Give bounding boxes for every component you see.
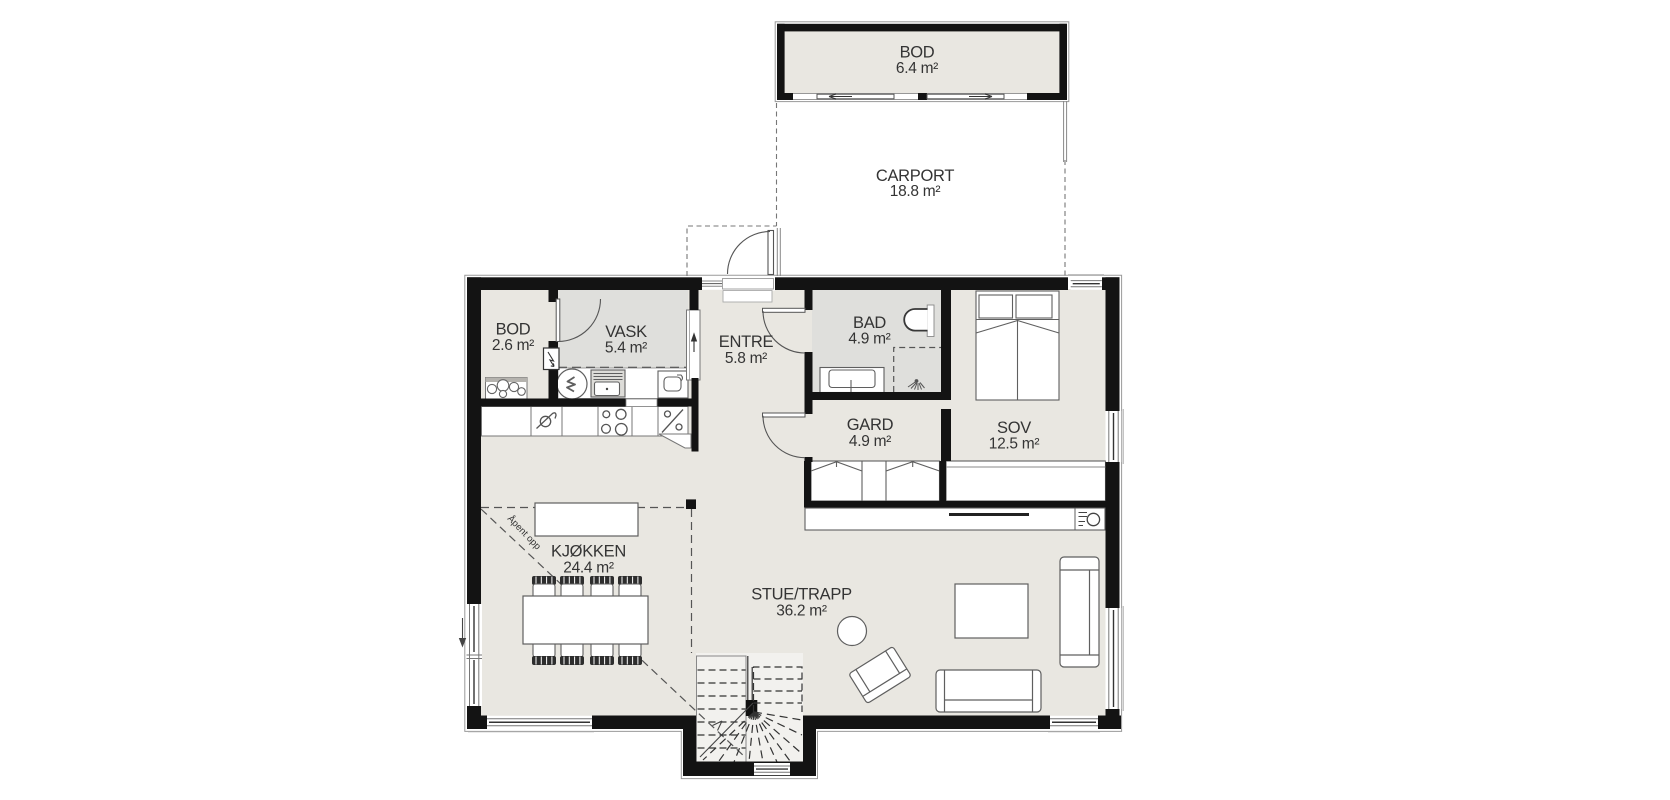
svg-text:12.5 m²: 12.5 m²	[989, 436, 1040, 453]
svg-text:BAD: BAD	[853, 314, 886, 332]
svg-text:KJØKKEN: KJØKKEN	[551, 543, 626, 561]
svg-text:2.6 m²: 2.6 m²	[492, 337, 534, 354]
svg-text:SOV: SOV	[997, 419, 1031, 437]
svg-text:BOD: BOD	[496, 321, 531, 339]
svg-text:5.8 m²: 5.8 m²	[725, 350, 767, 367]
svg-text:4.9 m²: 4.9 m²	[848, 331, 890, 348]
svg-text:36.2 m²: 36.2 m²	[776, 603, 827, 620]
svg-text:VASK: VASK	[605, 323, 647, 341]
svg-text:4.9 m²: 4.9 m²	[849, 433, 891, 450]
svg-text:GARD: GARD	[847, 416, 894, 434]
svg-text:5.4 m²: 5.4 m²	[605, 340, 647, 357]
svg-text:BOD: BOD	[900, 44, 935, 62]
svg-text:6.4 m²: 6.4 m²	[896, 60, 938, 77]
svg-text:ENTRE: ENTRE	[719, 333, 774, 351]
svg-text:STUE/TRAPP: STUE/TRAPP	[751, 586, 852, 604]
svg-text:18.8 m²: 18.8 m²	[890, 183, 941, 200]
svg-text:24.4 m²: 24.4 m²	[563, 560, 614, 577]
